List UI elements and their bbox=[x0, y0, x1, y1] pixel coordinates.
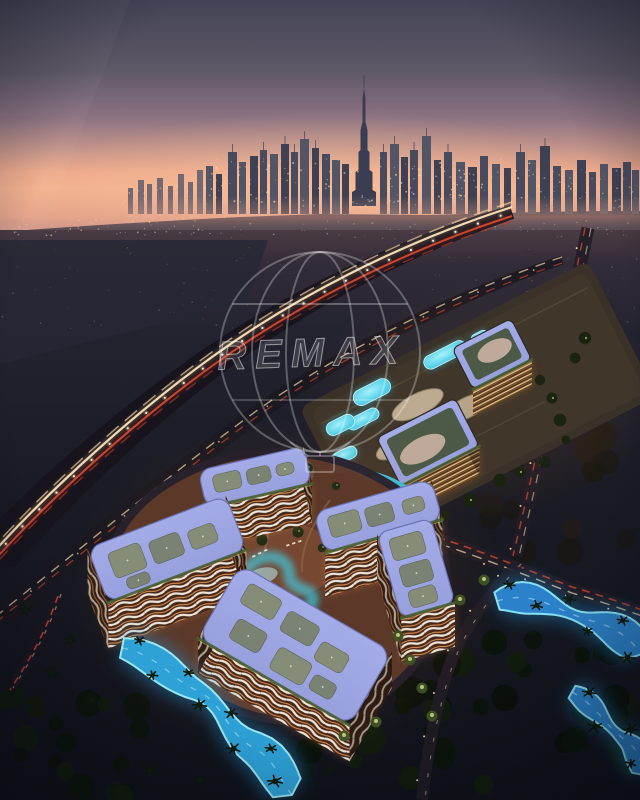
aerial-rendering: REMAX bbox=[0, 0, 640, 800]
vignette bbox=[0, 0, 640, 800]
scene-rendering: REMAX bbox=[0, 0, 640, 800]
